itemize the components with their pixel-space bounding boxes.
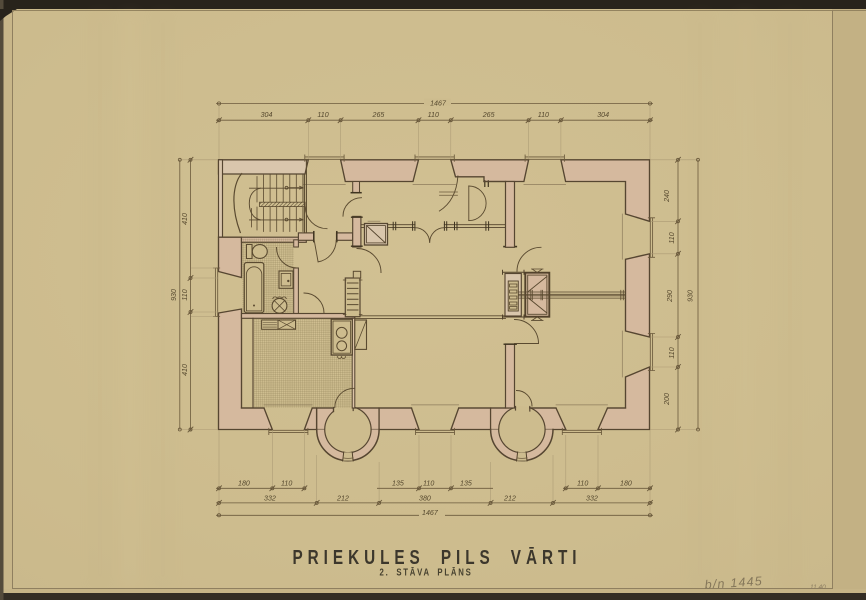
svg-text:135: 135 [460,480,472,488]
svg-text:410: 410 [181,213,189,225]
svg-text:1467: 1467 [430,99,447,107]
svg-text:110: 110 [428,111,439,119]
svg-text:110: 110 [181,289,189,300]
svg-text:265: 265 [372,111,385,119]
svg-text:180: 180 [238,480,250,488]
svg-text:212: 212 [336,495,349,503]
svg-text:380: 380 [419,495,431,503]
svg-text:110: 110 [538,111,549,119]
svg-text:212: 212 [503,495,516,503]
svg-text:1467: 1467 [422,509,439,517]
svg-text:200: 200 [663,393,671,406]
svg-text:265: 265 [482,111,495,119]
svg-text:332: 332 [264,495,276,503]
svg-text:110: 110 [577,480,588,488]
svg-text:110: 110 [317,111,328,119]
svg-text:240: 240 [663,190,671,203]
svg-text:410: 410 [181,364,189,376]
svg-text:332: 332 [586,495,598,503]
svg-text:110: 110 [668,232,676,243]
svg-text:110: 110 [423,480,434,488]
svg-text:11.40: 11.40 [810,584,826,591]
svg-text:304: 304 [597,111,609,119]
svg-text:180: 180 [620,480,632,488]
svg-text:930: 930 [687,290,695,302]
svg-text:110: 110 [281,480,292,488]
svg-text:2. STĀVA PLĀNS: 2. STĀVA PLĀNS [380,567,473,579]
svg-text:110: 110 [668,347,676,358]
svg-text:930: 930 [170,289,178,301]
svg-text:135: 135 [392,480,404,488]
svg-text:304: 304 [261,111,273,119]
svg-text:290: 290 [666,290,674,303]
